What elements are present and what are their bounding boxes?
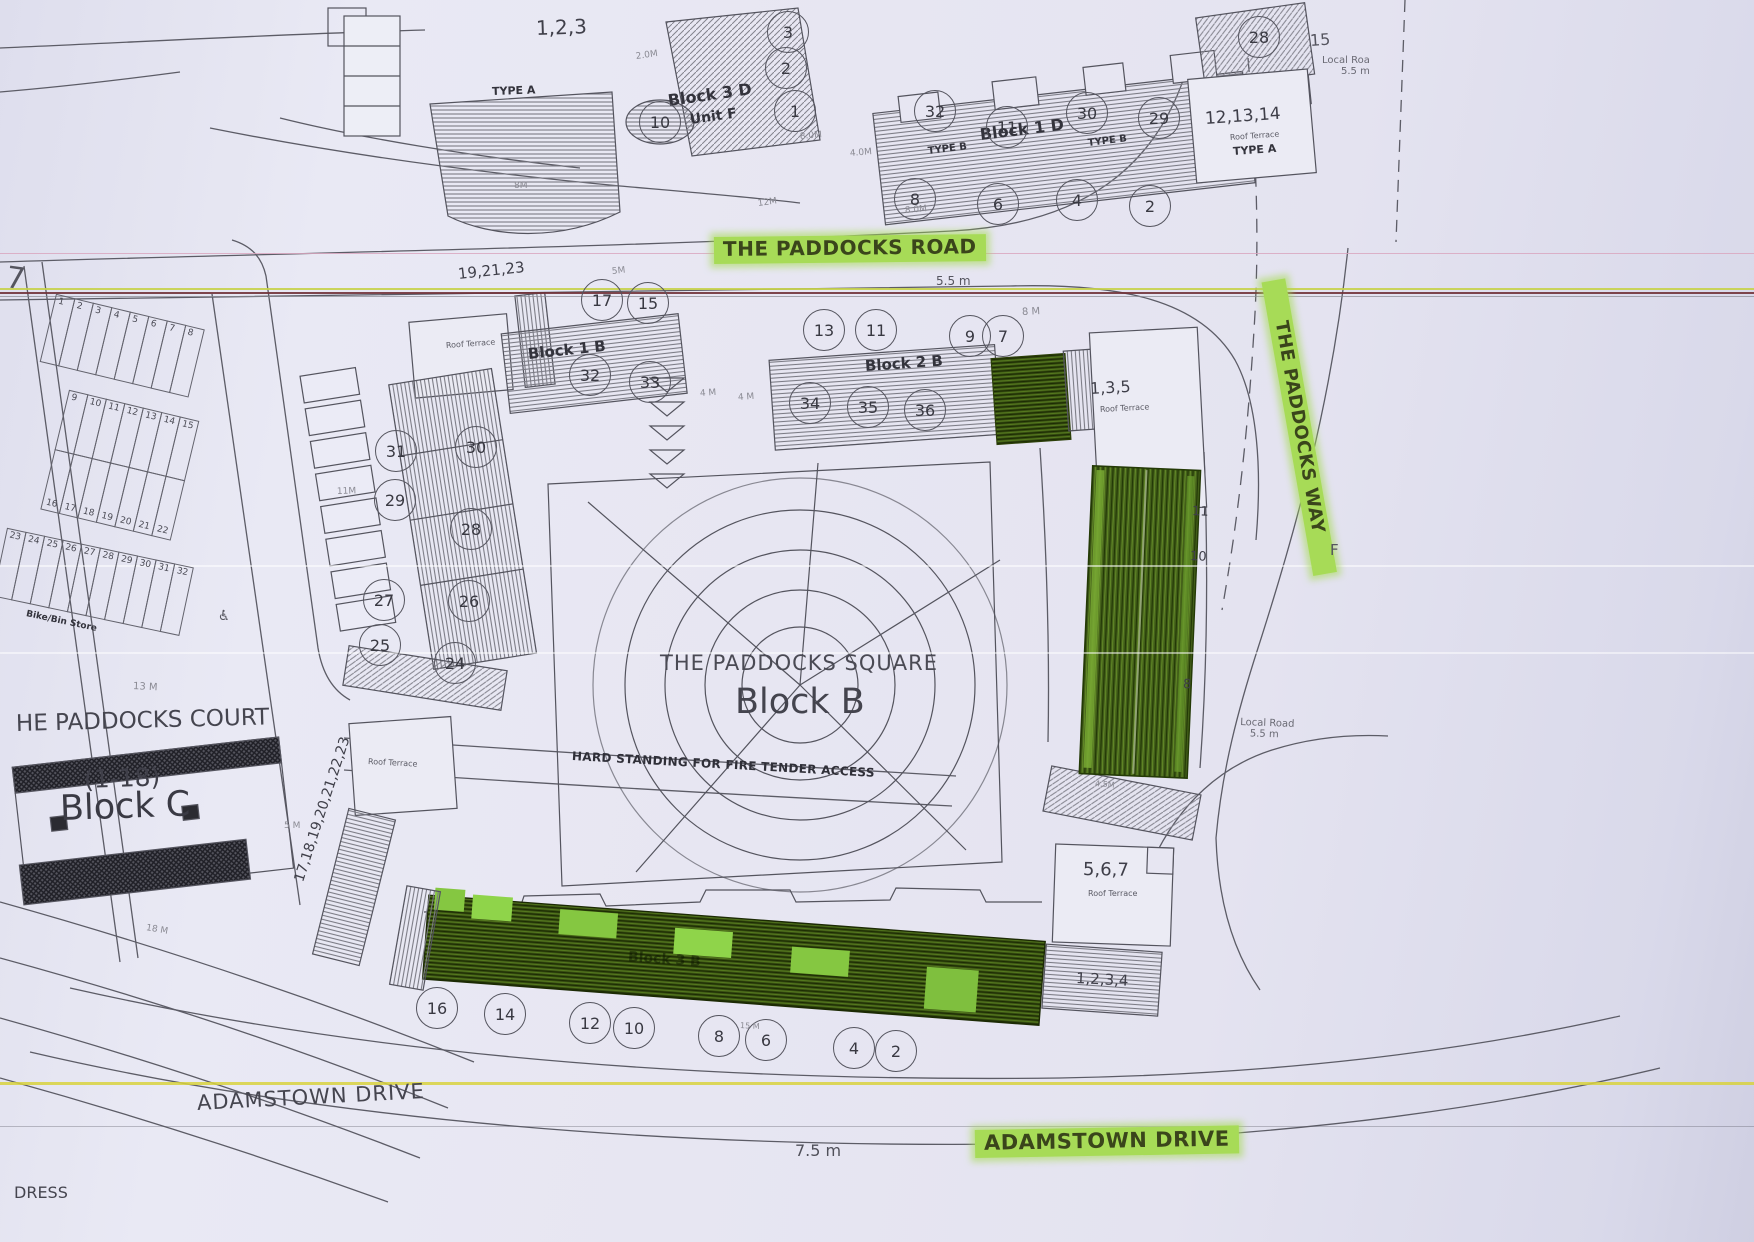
block-c-name: Block C [59,786,190,828]
units-123-nw: 1,2,3 [536,16,588,39]
unit-circle: 2 [765,47,807,89]
paddocks-square-plaza [548,462,1007,892]
unit-circle: 16 [416,987,458,1029]
f-label: F [1330,542,1339,558]
dim-4-0m: 4.0M [850,148,873,160]
local-road-east: Local Road 5.5 m [1240,718,1295,741]
paddocks-road-label: THE PADDOCKS ROAD [714,234,986,263]
edge-cut-dress: DRESS [14,1184,68,1201]
local-road-east-width: 5.5 m [1250,728,1279,740]
roof-terrace-567: Roof Terrace [1088,890,1137,899]
unit-circle: 28 [450,508,492,550]
units-567: 5,6,7 [1083,860,1129,880]
east-unit-11: 11 [1192,505,1209,520]
unit-circle: 27 [363,579,405,621]
unit-circle: 4 [833,1027,875,1069]
label-15: 15 [1309,31,1331,50]
local-road-ne-name: Local Roa [1322,55,1370,66]
east-green-building [1079,466,1200,778]
unit-circle: 33 [629,361,671,403]
unit-circle: 26 [448,580,490,622]
unit-circle: 25 [359,624,401,666]
block-2b-highlighted-end [991,354,1071,445]
unit-circle: 2 [875,1030,917,1072]
unit-circle: 17 [581,279,623,321]
adamstown-width: 7.5 m [795,1142,841,1159]
unit-circle: 34 [789,382,831,424]
dim-8m-e: 8 M [1022,307,1041,319]
unit-circle: 1 [774,90,816,132]
paddocks-road-width: 5.5 m [936,275,971,288]
scan-artifact-gray-bottom [0,1126,1754,1127]
unit-circle: 11 [986,106,1028,148]
unit-circle: 30 [455,426,497,468]
type-a-label-nw: TYPE A [492,84,536,97]
unit-circle: 35 [847,386,889,428]
unit-circle: 15 [627,282,669,324]
unit-circle: 2 [1129,185,1171,227]
block-b-name: Block B [735,684,865,722]
dim-4-5m: 4.5M [1095,780,1115,790]
unit-circle: 14 [484,993,526,1035]
dim-5m: 5M [611,267,625,278]
scan-artifact-gray [0,296,1754,297]
local-road-ne: Local Roa 5.5 m [1322,56,1370,78]
dim-8-0m-b: 8.0M [905,205,928,217]
scan-artifact-darkred [0,292,1754,294]
east-unit-10: 10 [1190,550,1207,565]
unit-circle: 7 [982,315,1024,357]
dim-8-0m-a: 8.0M [800,131,823,143]
road-lines [0,0,1660,1202]
scan-artifact-yellowgreen [0,288,1754,290]
unit-circle: 8 [698,1015,740,1057]
adamstown-highlighted-label: ADAMSTOWN DRIVE [975,1125,1239,1157]
unit-circle: 32 [914,90,956,132]
scan-artifact-yellow-bottom [0,1082,1754,1085]
type-a-building [430,92,620,234]
unit-circle: 29 [1138,97,1180,139]
unit-circle: 32 [569,354,611,396]
unit-circle: 12 [569,1002,611,1044]
unit-circle: 28 [1238,16,1280,58]
unit-circle: 24 [434,642,476,684]
dim-11m: 11M [337,487,357,497]
unit-circle: 13 [803,309,845,351]
dim-4m-b: 4 M [738,393,755,404]
units-135: 1,3,5 [1090,378,1132,397]
dim-13m: 13 M [133,682,158,694]
dim-15m: 15 M [740,1022,760,1032]
units-1234: 1,2,3,4 [1076,970,1129,989]
dim-5m-c: 5 M [284,822,300,832]
scan-artifact-white-1 [0,565,1754,567]
unit-circle: 4 [1056,179,1098,221]
unit-circle: 30 [1066,92,1108,134]
unit-circle: 10 [613,1007,655,1049]
dim-8m: 8M [514,182,528,192]
unit-circle: 6 [977,183,1019,225]
unit-circle: 31 [375,430,417,472]
unit-circle: 36 [904,389,946,431]
north-comb-structure [344,16,400,136]
local-road-ne-width: 5.5 m [1341,66,1370,77]
site-plan-scan: 1,2,3 TYPE A 7 Block 3 D Unit F 3 2 1 10… [0,0,1754,1242]
dim-4m-a: 4 M [700,389,717,400]
east-unit-8: 8 [1183,678,1192,692]
square-title: THE PADDOCKS SQUARE [660,652,938,675]
unit-circle: 11 [855,309,897,351]
unit-circle: 29 [374,479,416,521]
unit-circle: 10 [639,101,681,143]
